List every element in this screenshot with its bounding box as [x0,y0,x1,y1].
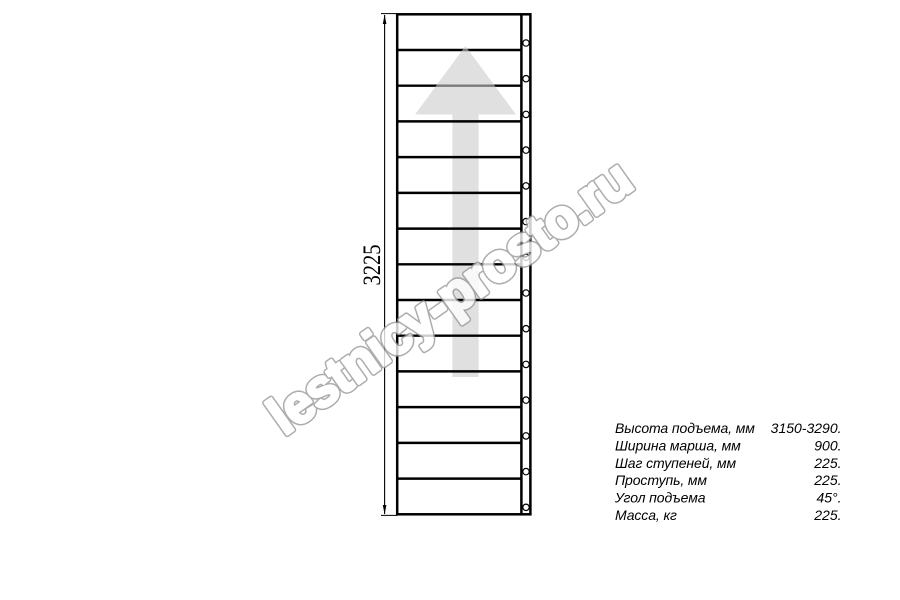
svg-text:3150-3290.: 3150-3290. [771,420,842,436]
svg-text:45°.: 45°. [816,490,841,506]
svg-text:225.: 225. [813,472,841,488]
svg-text:Проступь, мм: Проступь, мм [615,472,707,488]
svg-text:225.: 225. [813,507,841,523]
svg-text:Ширина марша, мм: Ширина марша, мм [615,438,741,454]
svg-text:Шаг ступеней, мм: Шаг ступеней, мм [615,455,736,471]
svg-text:225.: 225. [813,455,841,471]
svg-text:3225: 3225 [359,245,386,286]
svg-text:Угол подъема: Угол подъема [614,490,706,506]
svg-text:900.: 900. [814,438,841,454]
svg-text:Масса, кг: Масса, кг [615,507,677,523]
svg-text:Высота подъема, мм: Высота подъема, мм [615,420,755,436]
